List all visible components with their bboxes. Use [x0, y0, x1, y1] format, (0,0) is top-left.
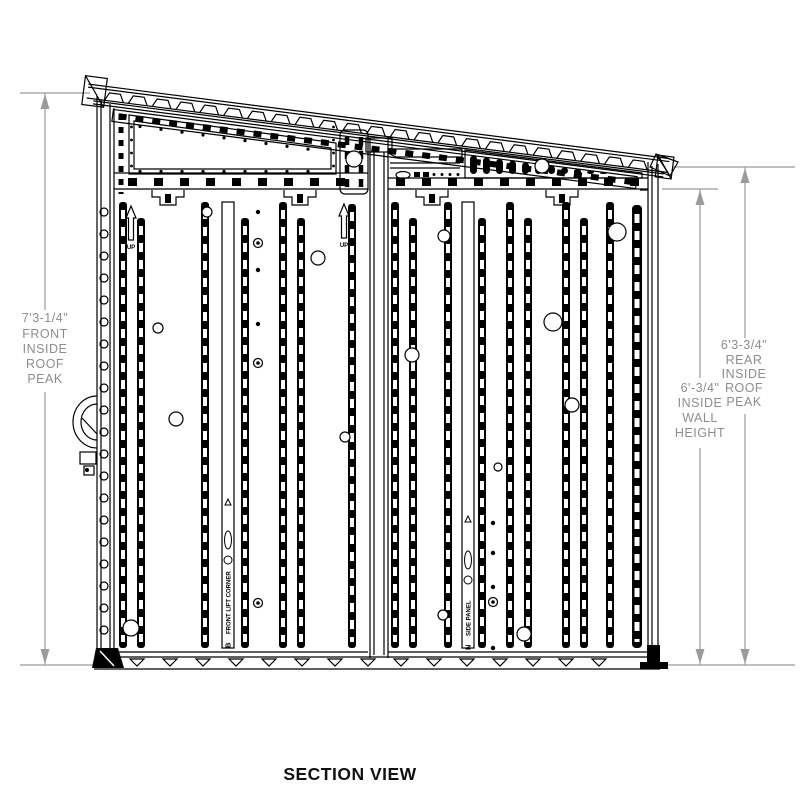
- header-rail: [114, 173, 648, 205]
- rear-roof-peak-dimension: 6'3-3/4" REAR INSIDE ROOF PEAK: [721, 338, 767, 409]
- front-peak-line2: INSIDE: [23, 342, 68, 356]
- window-fastener-dots: [130, 125, 335, 173]
- rear-peak-value: 6'3-3/4": [721, 338, 767, 352]
- door-handle: [73, 396, 97, 448]
- left-foot: [92, 648, 124, 668]
- door-latch: [80, 452, 96, 475]
- rear-peak-line2: INSIDE: [722, 367, 767, 381]
- rear-wall-edge: [640, 162, 658, 668]
- wall-height-line2: WALL: [682, 411, 718, 425]
- rail-hanger-brackets: [152, 190, 578, 205]
- up-arrow-left-label: UP: [127, 245, 135, 251]
- front-lift-corner-marker: B: [224, 642, 233, 648]
- front-peak-value: 7'3-1/4": [22, 311, 68, 325]
- wall-height-line1: INSIDE: [678, 396, 723, 410]
- wall-height-line3: HEIGHT: [675, 426, 725, 440]
- mid-rail-dots: [433, 173, 460, 176]
- rear-peak-line4: PEAK: [726, 395, 762, 409]
- drawing-canvas: 7'3-1/4" FRONT INSIDE ROOF PEAK 6'-3/4" …: [0, 0, 800, 800]
- front-peak-line1: FRONT: [22, 327, 68, 341]
- roof-assembly: [80, 76, 675, 193]
- section-view-drawing: 7'3-1/4" FRONT INSIDE ROOF PEAK 6'-3/4" …: [0, 0, 800, 800]
- up-arrow-right: UP: [339, 204, 349, 249]
- page-title: SECTION VIEW: [283, 764, 416, 784]
- side-panel-marker: N: [464, 645, 473, 650]
- wall-height-value: 6'-3/4": [681, 381, 720, 395]
- front-lift-corner-label: FRONT LIFT CORNER: [227, 571, 233, 634]
- base-rail: [92, 645, 668, 669]
- front-peak-line3: ROOF: [26, 357, 64, 371]
- front-peak-line4: PEAK: [27, 372, 63, 386]
- base-zigzag-trim: [130, 659, 606, 666]
- right-foot-base: [640, 662, 668, 669]
- shed-structure: UP UP: [73, 76, 678, 669]
- inside-wall-height-dimension: 6'-3/4" INSIDE WALL HEIGHT: [675, 381, 725, 440]
- front-roof-peak-dimension: 7'3-1/4" FRONT INSIDE ROOF PEAK: [22, 311, 68, 386]
- rear-peak-line1: REAR: [726, 353, 763, 367]
- gable-window-opening: [129, 115, 336, 174]
- up-arrow-right-label: UP: [340, 243, 348, 249]
- rear-peak-line3: ROOF: [725, 381, 763, 395]
- front-wall-edge: [97, 96, 121, 668]
- up-arrow-left: UP: [126, 206, 136, 251]
- center-wall-divider: [366, 138, 392, 658]
- wall-panel-strips: [119, 202, 642, 648]
- side-panel-label: SIDE PANEL: [467, 600, 473, 636]
